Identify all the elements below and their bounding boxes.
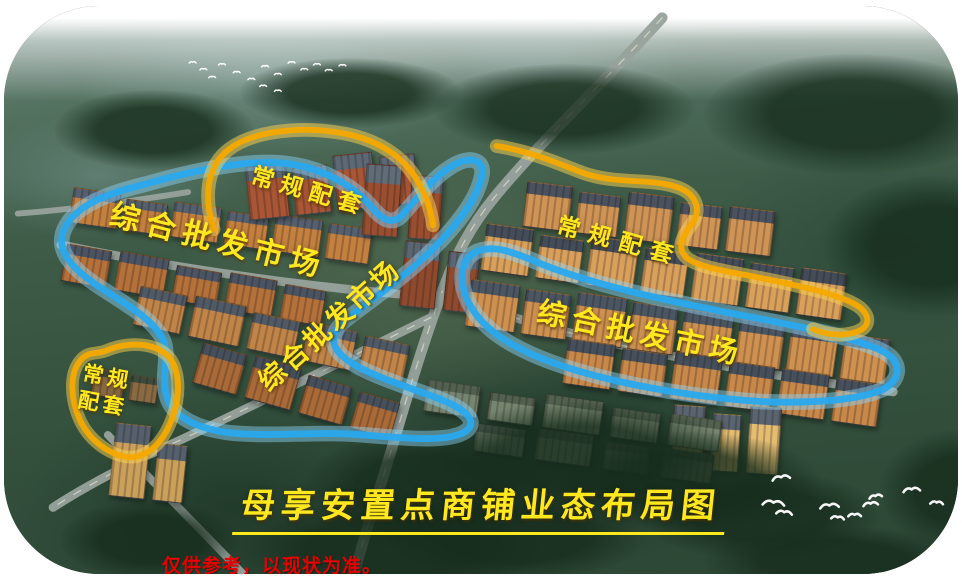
bird-icon: [274, 90, 281, 91]
map-title: 母享安置点商铺业态布局图: [232, 478, 730, 535]
disclaimer-note: 仅供参考，以现状为准。: [162, 551, 382, 574]
label-bottomleft-line2: 配套: [76, 388, 129, 420]
bird-icon: [772, 475, 790, 481]
bird-icon: [325, 69, 332, 70]
bird-icon: [248, 78, 255, 79]
bird-icon: [301, 69, 308, 70]
bird-icon: [189, 62, 196, 63]
bird-icon: [831, 516, 844, 520]
bird-icon: [763, 500, 785, 506]
bird-icon: [863, 502, 878, 506]
aerial-rendering: 常规配套 综合批发市场 综合批发市场 常规配套 综合批发市场 常规 配套 母享安…: [0, 0, 962, 580]
bird-icon: [260, 85, 267, 86]
bird-icon: [903, 487, 920, 492]
bird-icon: [262, 66, 269, 67]
bird-icon: [339, 65, 346, 66]
rendering-rounded-frame: 常规配套 综合批发市场 综合批发市场 常规配套 综合批发市场 常规 配套 母享安…: [4, 6, 958, 574]
bird-icon: [288, 62, 295, 63]
bird-icon: [209, 76, 216, 77]
bird-icon: [274, 73, 281, 74]
bird-icon: [820, 503, 839, 508]
bird-icon: [200, 69, 207, 70]
bird-icon: [233, 71, 240, 72]
bird-icon: [848, 514, 861, 517]
bird-icon: [930, 501, 943, 504]
bird-icon: [869, 494, 882, 499]
bird-icon: [219, 64, 226, 65]
bird-icon: [314, 64, 321, 65]
bird-icon: [776, 510, 792, 515]
